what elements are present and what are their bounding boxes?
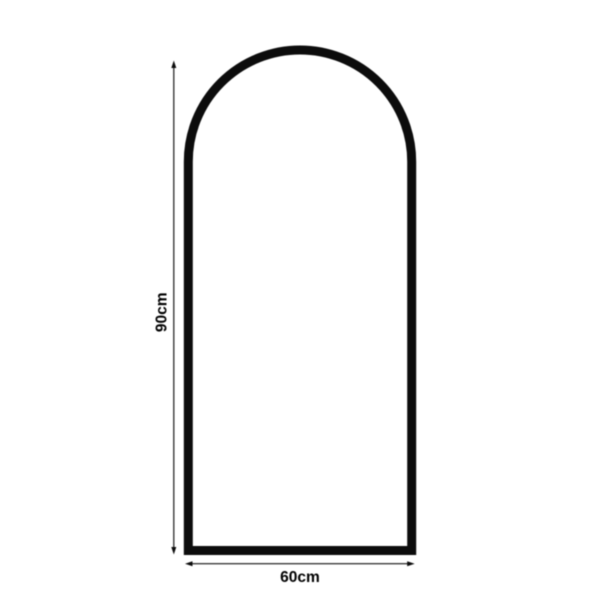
svg-text:90cm: 90cm — [153, 292, 170, 332]
svg-text:60cm: 60cm — [280, 569, 320, 586]
